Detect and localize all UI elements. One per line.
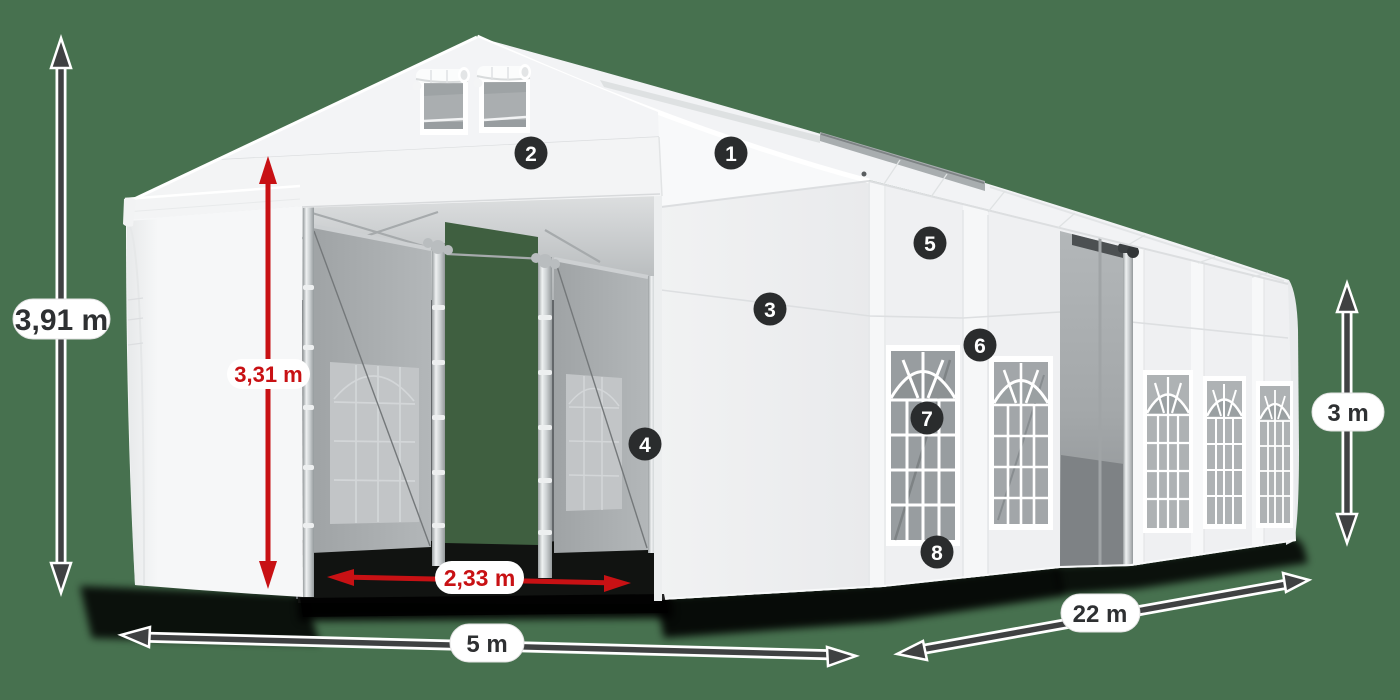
svg-text:3,91 m: 3,91 m (15, 304, 108, 337)
svg-text:7: 7 (921, 408, 933, 431)
svg-text:6: 6 (974, 335, 986, 358)
svg-text:3,31 m: 3,31 m (234, 362, 303, 387)
svg-text:5: 5 (924, 233, 936, 256)
svg-text:3: 3 (764, 299, 776, 322)
svg-text:8: 8 (931, 542, 943, 565)
svg-text:1: 1 (725, 143, 737, 166)
svg-text:4: 4 (639, 434, 651, 457)
svg-text:2,33 m: 2,33 m (444, 565, 516, 591)
svg-text:22 m: 22 m (1073, 601, 1128, 628)
svg-text:3 m: 3 m (1327, 400, 1368, 427)
svg-text:5 m: 5 m (466, 631, 507, 658)
svg-text:2: 2 (525, 143, 537, 166)
